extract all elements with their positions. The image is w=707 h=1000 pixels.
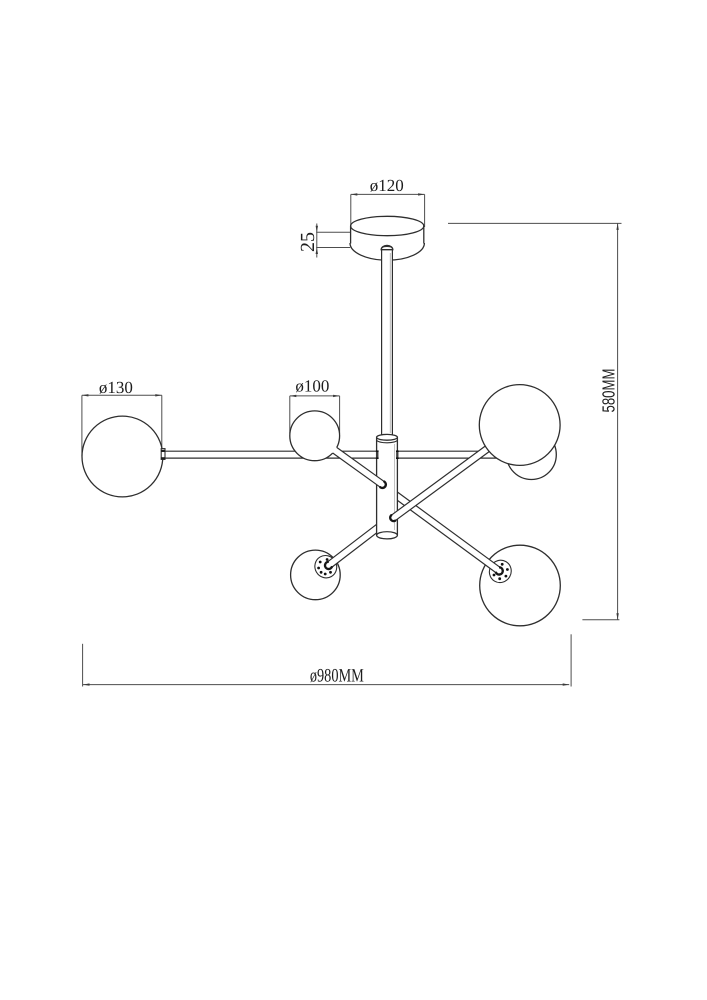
svg-text:ø120: ø120 — [370, 176, 404, 195]
svg-text:ø980MM: ø980MM — [310, 666, 364, 687]
svg-text:580MM: 580MM — [599, 369, 619, 413]
svg-text:ø100: ø100 — [295, 377, 329, 396]
svg-text:25: 25 — [297, 232, 319, 252]
svg-text:ø130: ø130 — [99, 378, 133, 397]
